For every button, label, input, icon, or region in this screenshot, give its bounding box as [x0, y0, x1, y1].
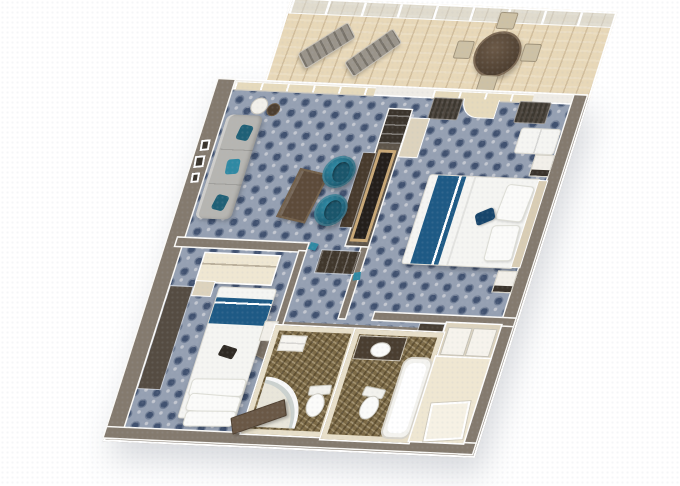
- wall-art-frame-2: [193, 155, 205, 168]
- towel-shelf: [277, 335, 308, 352]
- suite-floorplan: [125, 88, 572, 438]
- swivel-chair-2-seat: [321, 200, 344, 221]
- twin-bed-item: [217, 344, 237, 359]
- round-table: [467, 30, 528, 78]
- render-canvas: [0, 0, 680, 486]
- twin-bed-runner: [208, 297, 272, 326]
- patio-chair-west: [452, 40, 475, 59]
- teal-decor-2: [353, 272, 361, 281]
- hall-storage-cabinet: [315, 250, 360, 274]
- patio-chair-north: [495, 12, 518, 30]
- wall-art-frame-3: [190, 172, 200, 183]
- tub-bath-toilet-bowl: [355, 394, 383, 421]
- teal-pillow-3: [210, 194, 230, 212]
- teal-pillow-2: [225, 159, 241, 175]
- swivel-chair-1-seat: [329, 162, 352, 183]
- window-bench: [513, 127, 561, 155]
- dressing-door: [423, 401, 470, 441]
- twin-pillow-3: [182, 410, 237, 427]
- patio-chair-east: [519, 43, 542, 62]
- shower-bath-toilet-bowl: [303, 393, 327, 418]
- accent-pillow: [475, 207, 496, 226]
- patio-chair-south: [475, 75, 498, 93]
- vanity-counter: [353, 336, 406, 360]
- teal-pillow-1: [235, 124, 254, 141]
- balcony-glass-railing: [288, 0, 614, 28]
- closet-sliding-doors: [436, 323, 501, 359]
- second-bedroom-desk: [197, 253, 280, 284]
- sink-basin: [368, 342, 393, 358]
- wall-art-frame-1: [199, 139, 210, 151]
